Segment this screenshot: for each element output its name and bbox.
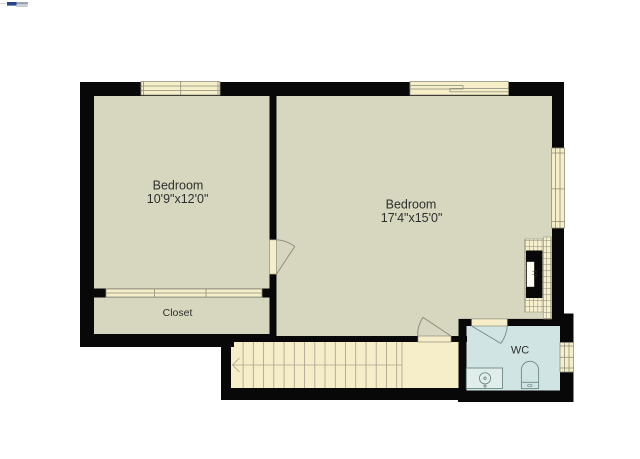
svg-text:Closet: Closet <box>163 307 193 319</box>
svg-text:10'9"x12'0": 10'9"x12'0" <box>147 192 209 206</box>
svg-text:Bedroom: Bedroom <box>386 198 437 212</box>
svg-text:WC: WC <box>511 345 529 357</box>
svg-text:17'4"x15'0": 17'4"x15'0" <box>381 211 443 225</box>
svg-text:FP: FP <box>530 270 536 277</box>
svg-text:Bedroom: Bedroom <box>153 179 204 193</box>
